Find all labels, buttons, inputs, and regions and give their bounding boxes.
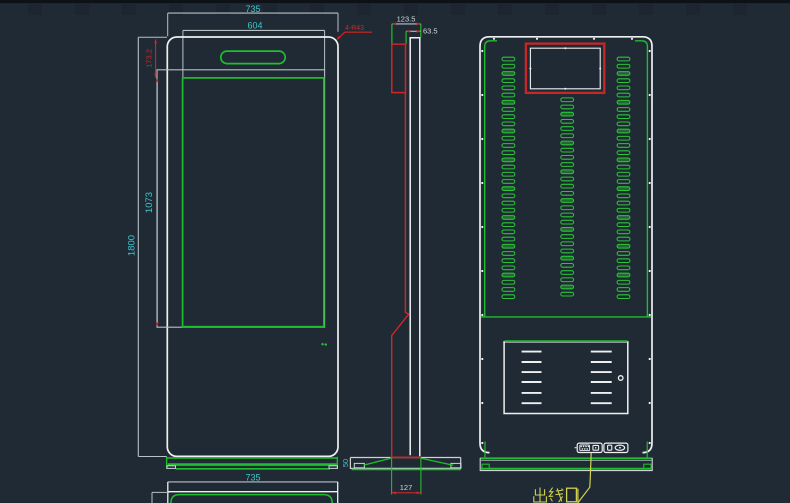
svg-text:1073: 1073	[144, 192, 155, 213]
svg-text:735: 735	[245, 4, 260, 14]
svg-text:127: 127	[400, 483, 413, 492]
svg-text:63.5: 63.5	[423, 26, 438, 35]
svg-text:50: 50	[341, 459, 350, 467]
svg-text:173.2: 173.2	[145, 49, 154, 68]
svg-text:4-R43: 4-R43	[345, 25, 364, 32]
svg-text:123.5: 123.5	[397, 15, 416, 24]
svg-text:735: 735	[245, 472, 260, 482]
svg-text:604: 604	[247, 21, 262, 31]
svg-text:1800: 1800	[127, 235, 138, 256]
